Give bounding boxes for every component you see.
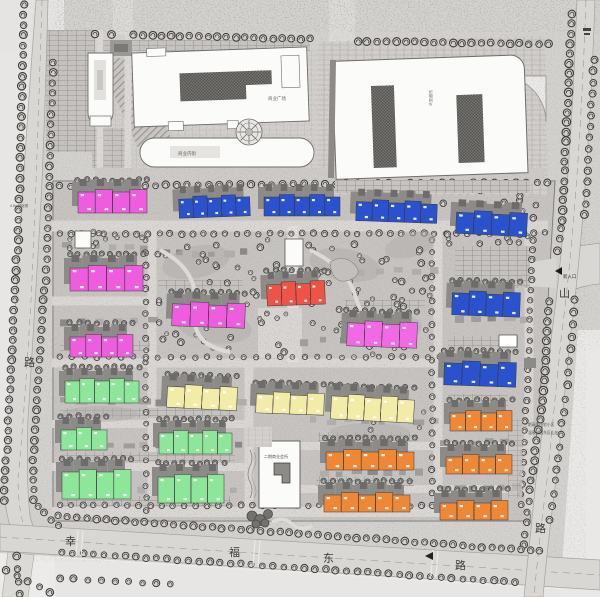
svg-text:福: 福 xyxy=(229,545,240,559)
svg-text:路: 路 xyxy=(24,356,35,369)
svg-text:三期高层住宅小区: 三期高层住宅小区 xyxy=(524,422,555,427)
svg-text:商业内街: 商业内街 xyxy=(178,150,196,157)
svg-text:山: 山 xyxy=(559,287,570,300)
svg-text:温泉花园东区山庄: 温泉花园东区山庄 xyxy=(528,430,559,435)
svg-text:幸: 幸 xyxy=(65,535,76,548)
svg-text:4.5m绿化带: 4.5m绿化带 xyxy=(10,203,29,208)
svg-text:大型超市: 大型超市 xyxy=(427,90,434,106)
svg-text:新入口: 新入口 xyxy=(563,273,577,280)
svg-text:商业广场: 商业广场 xyxy=(268,95,286,102)
svg-text:路: 路 xyxy=(455,559,466,572)
svg-text:二期商业会所: 二期商业会所 xyxy=(264,453,288,459)
svg-text:东: 东 xyxy=(323,552,334,565)
svg-text:路: 路 xyxy=(535,522,546,535)
